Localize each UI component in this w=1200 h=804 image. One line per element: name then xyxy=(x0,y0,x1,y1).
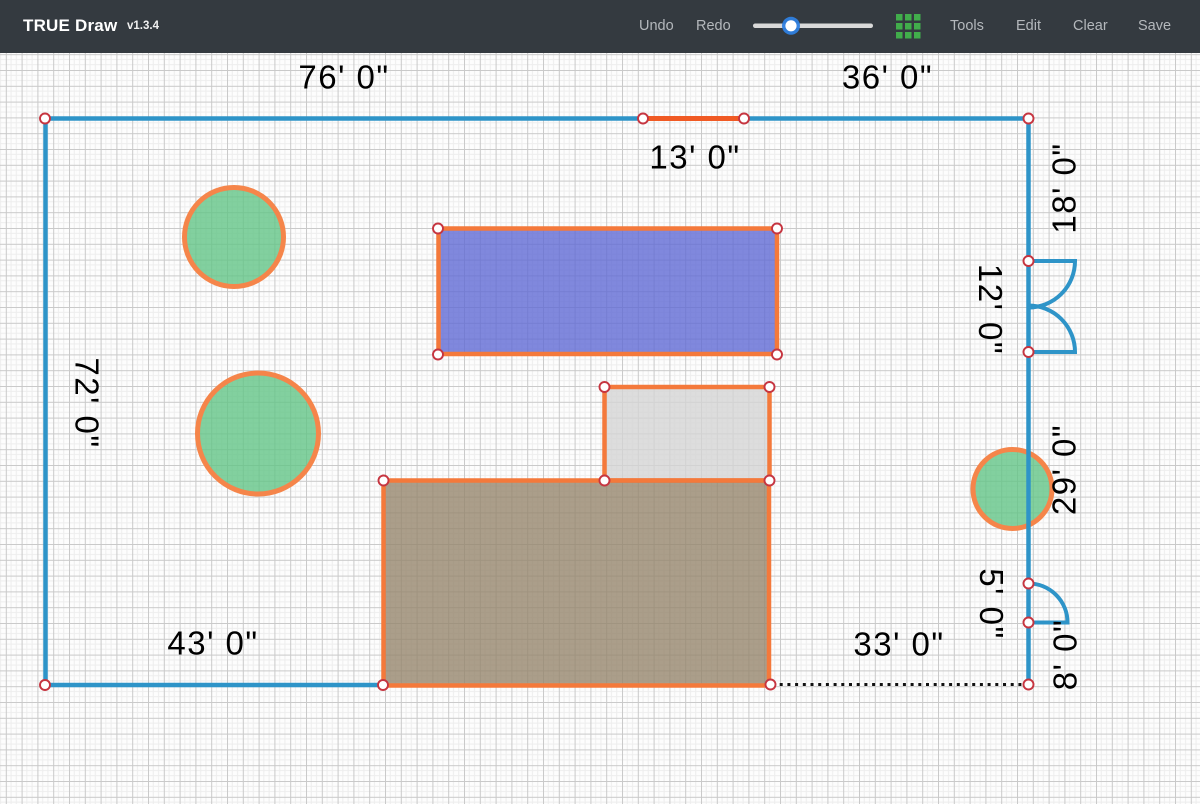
svg-text:5' 0": 5' 0" xyxy=(973,568,1010,639)
svg-text:76' 0": 76' 0" xyxy=(298,59,389,96)
svg-text:72' 0": 72' 0" xyxy=(69,357,106,448)
svg-text:18' 0": 18' 0" xyxy=(1046,142,1083,233)
svg-text:12' 0": 12' 0" xyxy=(972,264,1009,355)
svg-text:33' 0": 33' 0" xyxy=(853,626,944,663)
svg-text:29' 0": 29' 0" xyxy=(1046,424,1083,515)
svg-text:43' 0": 43' 0" xyxy=(167,625,258,662)
svg-text:8' 0": 8' 0" xyxy=(1047,619,1084,690)
svg-text:36' 0": 36' 0" xyxy=(842,59,933,96)
svg-text:13' 0": 13' 0" xyxy=(649,139,740,176)
